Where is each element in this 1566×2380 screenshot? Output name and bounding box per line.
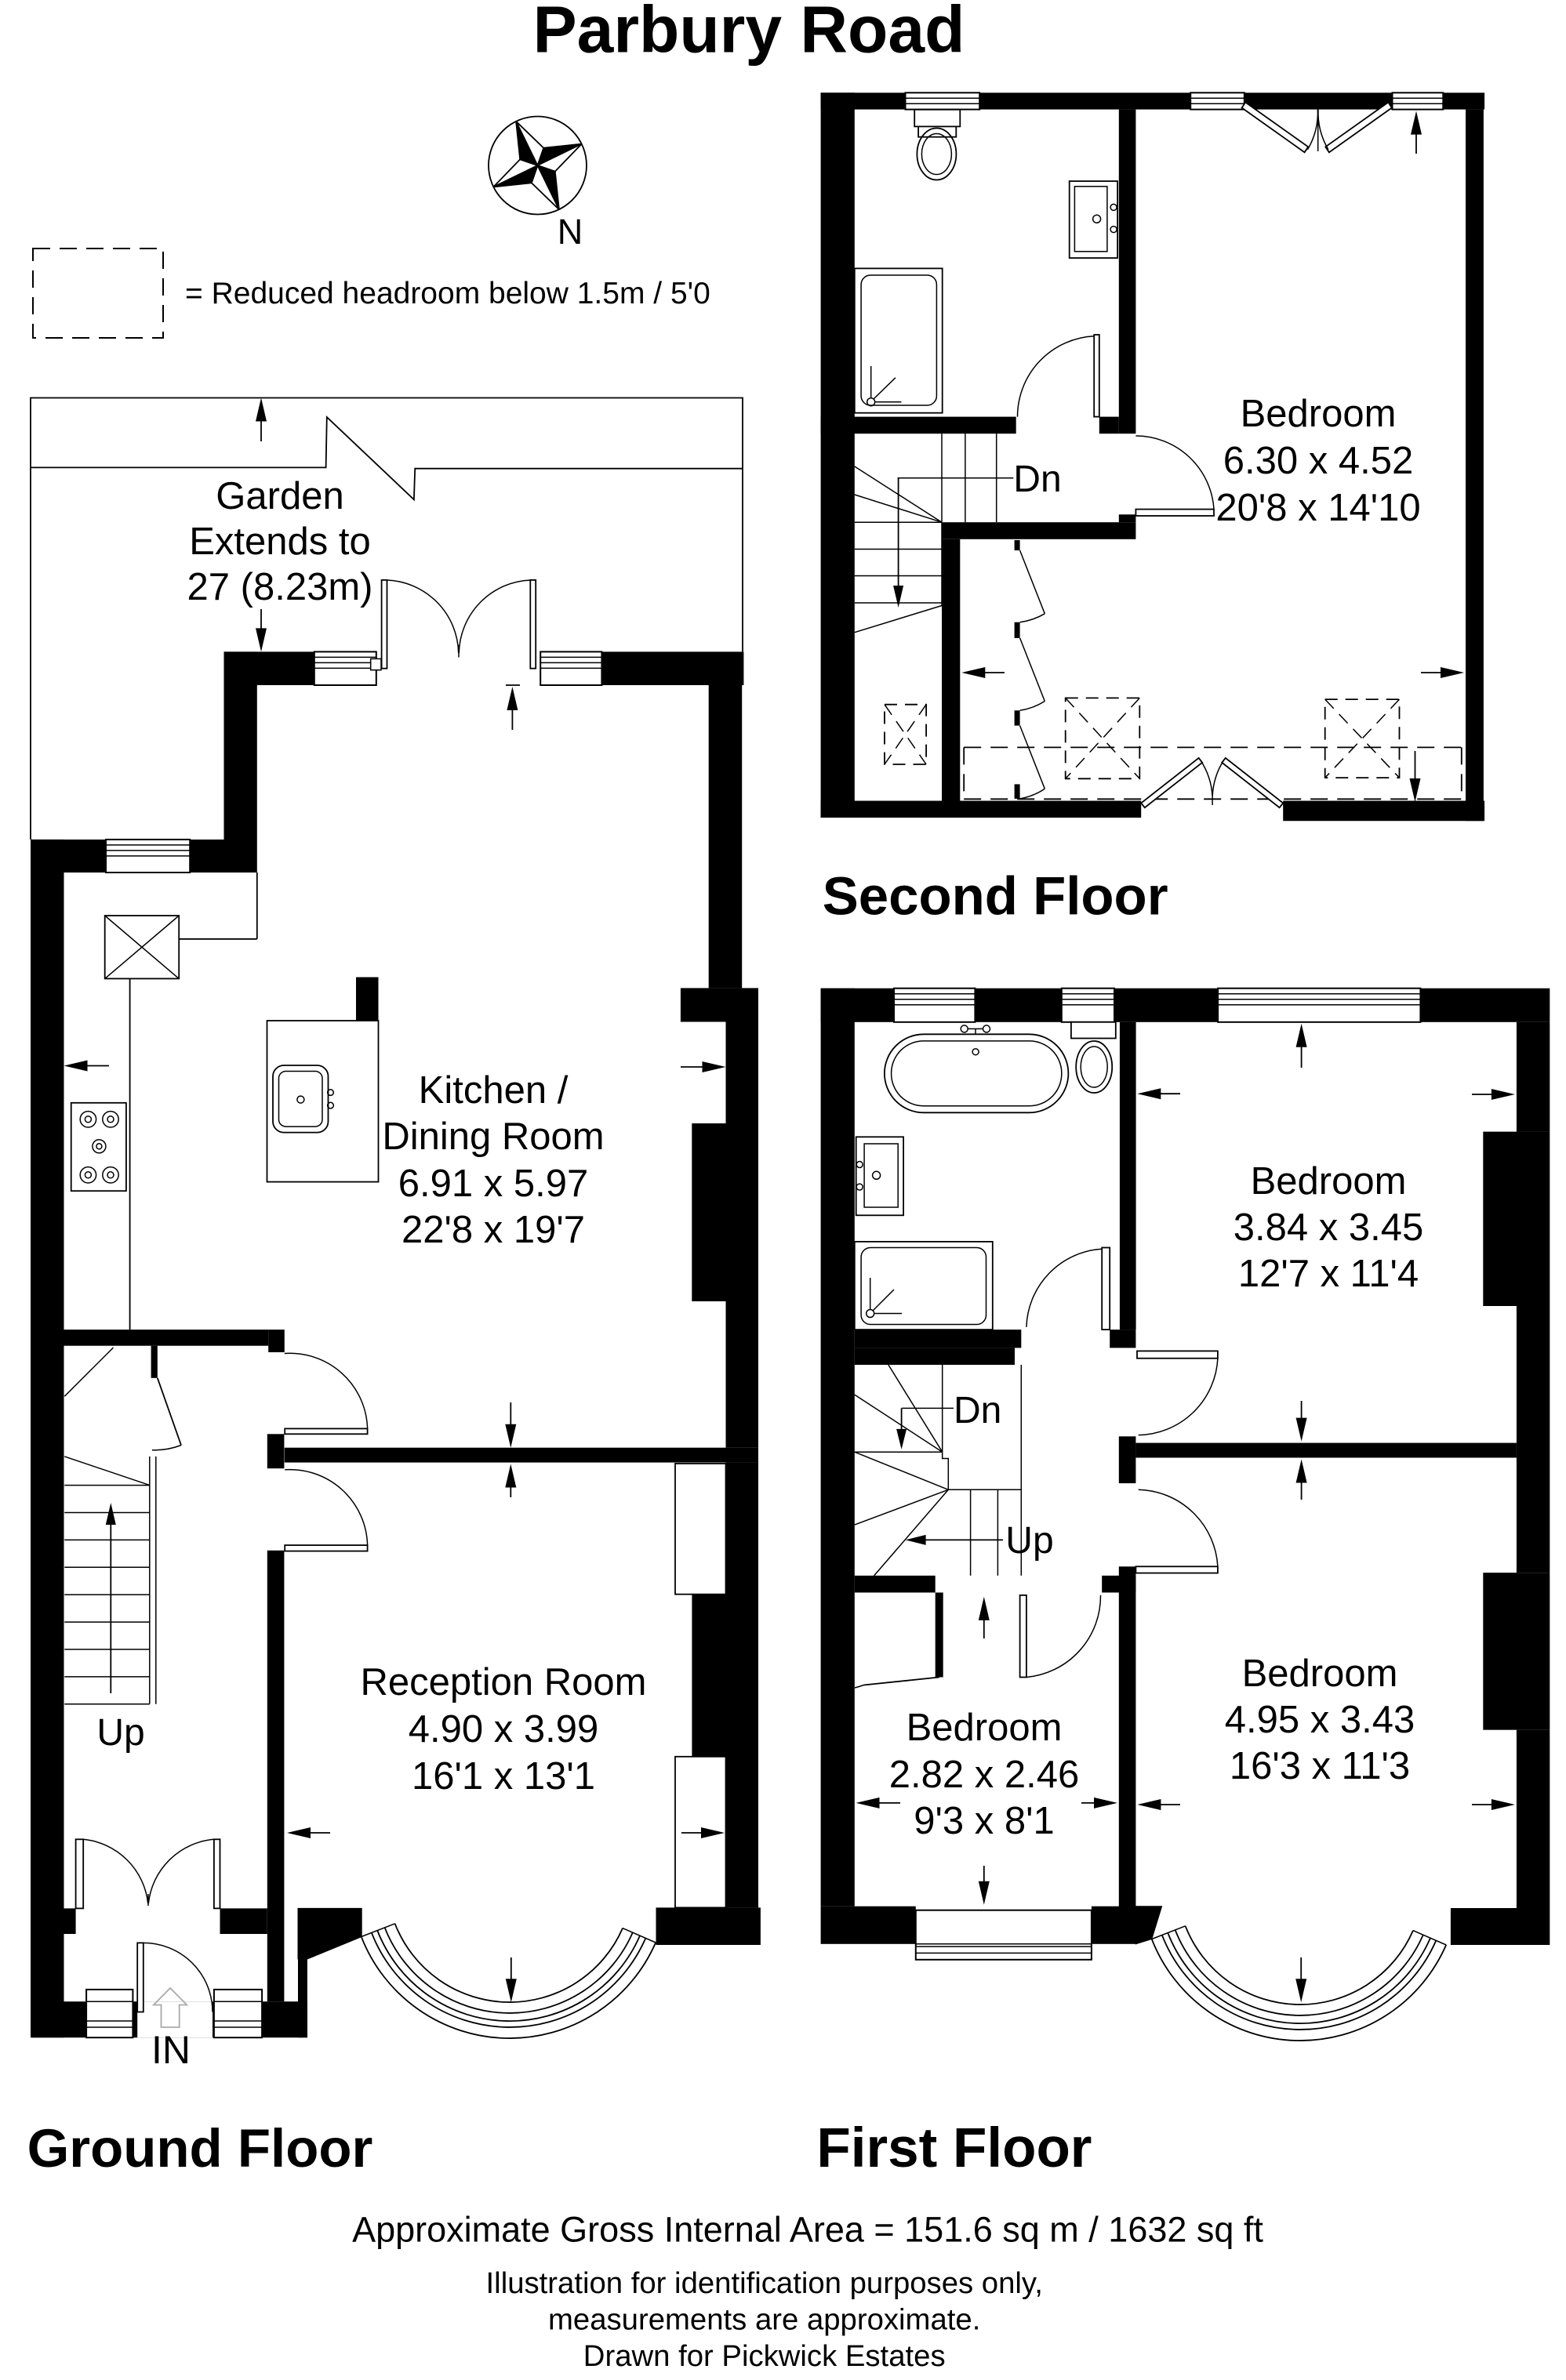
svg-text:= Reduced headroom below 1.5m: = Reduced headroom below 1.5m / 5'0 xyxy=(185,277,710,310)
svg-text:Dining Room: Dining Room xyxy=(382,1116,604,1158)
svg-text:Parbury Road: Parbury Road xyxy=(533,0,965,67)
svg-text:Up: Up xyxy=(1005,1520,1053,1562)
svg-text:22'8 x 19'7: 22'8 x 19'7 xyxy=(401,1209,585,1251)
svg-text:Bedroom: Bedroom xyxy=(1242,1653,1398,1695)
svg-text:Bedroom: Bedroom xyxy=(1251,1160,1407,1203)
svg-text:Ground Floor: Ground Floor xyxy=(27,2118,373,2179)
svg-text:4.90 x 3.99: 4.90 x 3.99 xyxy=(409,1708,598,1751)
svg-text:Approximate Gross Internal Are: Approximate Gross Internal Area = 151.6 … xyxy=(352,2210,1263,2250)
svg-text:Up: Up xyxy=(96,1712,144,1754)
svg-text:Reception Room: Reception Room xyxy=(361,1661,647,1703)
svg-text:IN: IN xyxy=(151,2028,191,2072)
svg-text:Bedroom: Bedroom xyxy=(907,1707,1063,1749)
svg-text:9'3 x 8'1: 9'3 x 8'1 xyxy=(914,1800,1054,1842)
svg-text:12'7 x 11'4: 12'7 x 11'4 xyxy=(1238,1253,1419,1295)
svg-text:Kitchen /: Kitchen / xyxy=(419,1069,569,1112)
svg-text:27 (8.23m): 27 (8.23m) xyxy=(187,566,373,608)
svg-text:3.84 x 3.45: 3.84 x 3.45 xyxy=(1234,1206,1423,1249)
svg-text:Second Floor: Second Floor xyxy=(823,866,1168,927)
svg-text:N: N xyxy=(558,212,583,252)
svg-text:Bedroom: Bedroom xyxy=(1241,393,1397,435)
svg-text:6.91 x 5.97: 6.91 x 5.97 xyxy=(398,1163,588,1205)
svg-text:Dn: Dn xyxy=(1013,459,1061,500)
svg-text:Dn: Dn xyxy=(954,1390,1001,1431)
svg-text:16'3 x 11'3: 16'3 x 11'3 xyxy=(1230,1745,1410,1787)
svg-text:Extends to: Extends to xyxy=(189,521,371,563)
svg-text:2.82 x 2.46: 2.82 x 2.46 xyxy=(889,1754,1079,1796)
svg-text:20'8 x 14'10: 20'8 x 14'10 xyxy=(1215,487,1420,529)
svg-text:First Floor: First Floor xyxy=(816,2117,1092,2179)
svg-text:Garden: Garden xyxy=(216,475,343,517)
svg-text:4.95 x 3.43: 4.95 x 3.43 xyxy=(1225,1699,1415,1741)
svg-text:16'1 x 13'1: 16'1 x 13'1 xyxy=(412,1755,595,1798)
svg-text:measurements are approximate.: measurements are approximate. xyxy=(548,2303,980,2337)
svg-text:Drawn for Pickwick Estates: Drawn for Pickwick Estates xyxy=(583,2339,946,2373)
svg-text:Illustration for identificatio: Illustration for identification purposes… xyxy=(486,2266,1043,2300)
svg-text:6.30 x 4.52: 6.30 x 4.52 xyxy=(1223,440,1413,482)
